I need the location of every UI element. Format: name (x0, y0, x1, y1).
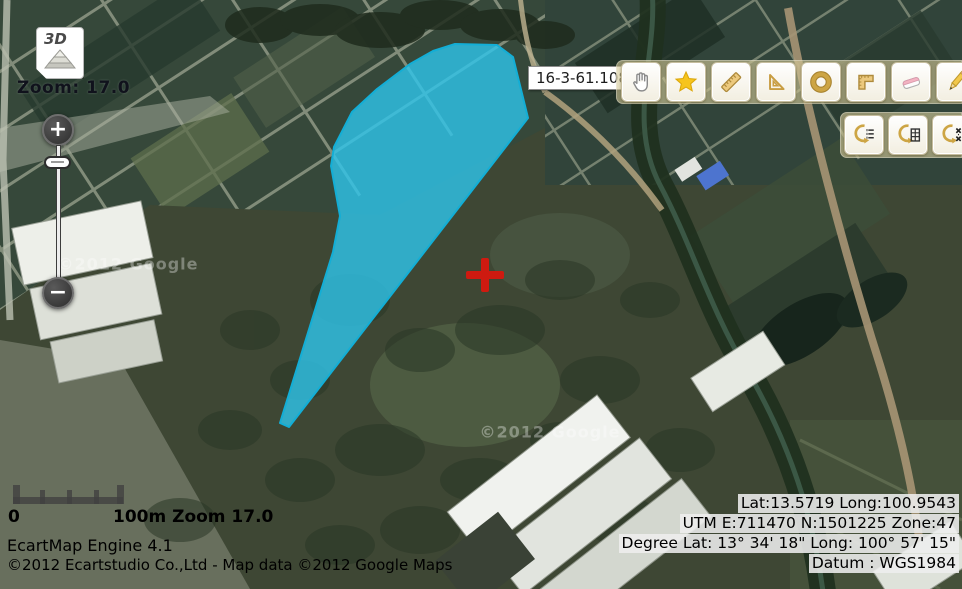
zoom-out-button[interactable]: − (42, 277, 74, 309)
degree-readout: Degree Lat: 13° 34' 18" Long: 100° 57' 1… (619, 534, 959, 553)
utm-readout: UTM E:711470 N:1501225 Zone:47 (680, 514, 959, 533)
donut-icon (808, 69, 834, 95)
set-square-icon (763, 69, 789, 95)
view-3d-label: 3D (44, 30, 67, 48)
zoom-slider-handle[interactable] (44, 156, 71, 169)
measure-angle-button[interactable] (846, 62, 886, 102)
star-icon (673, 69, 699, 95)
favorite-tool-button[interactable] (666, 62, 706, 102)
copyright-label: ©2012 Ecartstudio Co.,Ltd - Map data ©20… (7, 556, 452, 574)
view-3d-button[interactable]: 3D (36, 27, 84, 79)
convert-xy-icon (939, 122, 962, 148)
scale-tick (40, 490, 45, 504)
crosshair-vertical-bar (481, 258, 489, 292)
engine-version-label: EcartMap Engine 4.1 (7, 536, 173, 555)
scale-tick (94, 490, 99, 504)
ruler-icon (718, 69, 744, 95)
draw-circle-button[interactable] (801, 62, 841, 102)
google-watermark: ©2012 Google (479, 423, 620, 442)
datum-readout: Datum : WGS1984 (809, 554, 959, 573)
zoom-in-button[interactable]: + (42, 114, 74, 146)
scale-distance-label: 100m Zoom 17.0 (113, 507, 273, 527)
convert-list-icon (851, 122, 877, 148)
toolbar-row1 (616, 60, 962, 104)
eraser-icon (898, 69, 924, 95)
zoom-status-label: Zoom: 17.0 (17, 78, 130, 98)
convert-table-button[interactable] (888, 115, 928, 155)
latlong-readout: Lat:13.5719 Long:100.9543 (738, 494, 959, 513)
convert-table-icon (895, 122, 921, 148)
measure-distance-button[interactable] (711, 62, 751, 102)
pyramid-icon (44, 48, 76, 70)
corner-ruler-icon (853, 69, 879, 95)
coordinate-panel: Lat:13.5719 Long:100.9543 UTM E:711470 N… (619, 494, 959, 573)
pan-tool-button[interactable] (621, 62, 661, 102)
scale-tick (67, 490, 72, 504)
convert-xy-button[interactable] (932, 115, 962, 155)
eraser-tool-button[interactable] (891, 62, 931, 102)
pencil-icon (943, 69, 962, 95)
measure-area-button[interactable] (756, 62, 796, 102)
scale-zero-label: 0 (8, 507, 20, 527)
google-watermark: ©2012 Google (57, 255, 198, 274)
convert-list-button[interactable] (844, 115, 884, 155)
toolbar-row2 (840, 112, 962, 158)
draw-pencil-button[interactable] (936, 62, 962, 102)
scale-tick (13, 485, 20, 504)
hand-icon (628, 69, 654, 95)
map-application: ©2012 Google ©2012 Google 3D Zoom: 17.0 … (0, 0, 962, 589)
scale-tick (117, 485, 124, 504)
